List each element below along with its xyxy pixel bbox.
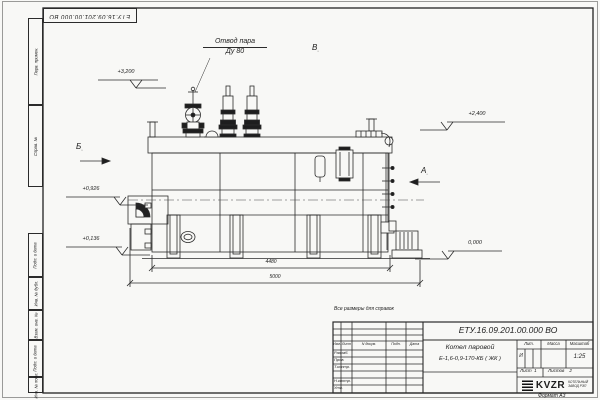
boiler-drawing: [0, 0, 600, 400]
kvzr-logo-icon: [522, 380, 533, 391]
title-doc-number: ЕТУ.16.09.201.00.000 ВО: [423, 326, 593, 335]
title-product-line1: Котел паровой: [423, 344, 517, 351]
top-stamp-box: ЕТУ.16.09.201.00.000 ВО: [43, 8, 137, 23]
elevation-0926: +0,926: [64, 186, 118, 192]
title-product-line2: Е-1,6-0,9-170-КБ ( ЖК ): [423, 356, 517, 362]
elevation-3200: +3,200: [98, 69, 154, 75]
rev-header-izm: Изм.: [333, 343, 341, 347]
margin-label: Инв. № подл.: [33, 372, 38, 398]
row-label-checked: Пров.: [334, 358, 345, 362]
elevation-0000: 0,000: [448, 240, 502, 246]
scale-header: Масштаб: [566, 342, 593, 347]
top-stamp-number: ЕТУ.16.09.201.00.000 ВО: [49, 13, 130, 19]
steam-outlet-callout: Отвод пара Ду 80: [203, 38, 267, 55]
reference-note: Все размеры для справок: [334, 307, 394, 313]
sheet-cell: Лист 1: [520, 369, 537, 374]
rev-header-date: Дата: [406, 343, 423, 347]
row-label-tcontrol: Т.контр.: [334, 365, 350, 369]
margin-cell-podp-data-1: Подп. и дата: [28, 233, 43, 277]
steam-outlet-line1: Отвод пара: [203, 38, 267, 48]
margin-label: Подп. и дата: [33, 345, 38, 371]
rev-header-list: Лист: [341, 343, 352, 347]
mass-header: Масса: [541, 342, 566, 347]
lit-value: И: [517, 354, 525, 360]
margin-label: Справ. №: [33, 136, 38, 155]
row-label-developed: Разраб.: [334, 351, 348, 355]
sheets-cell: Листов 2: [548, 369, 572, 374]
view-label-a: А◦: [421, 167, 428, 177]
margin-label: Взам. инв. №: [33, 312, 38, 338]
drawing-sheet: Перв. примен. Справ. № Подп. и дата Инв.…: [0, 0, 600, 400]
kvzr-logo-text: KVZR: [536, 380, 565, 391]
steam-outlet-line2: Ду 80: [203, 48, 267, 56]
row-label-ncontrol: Н.контр.: [334, 379, 351, 383]
lit-header: Лит.: [517, 342, 541, 347]
rev-header-doc: N докум.: [352, 343, 386, 347]
margin-label: Перв. примен.: [33, 48, 38, 76]
margin-cell-perv-primen: Перв. примен.: [28, 18, 43, 105]
format-note: Формат А3: [538, 394, 565, 400]
elevation-2400: +2,400: [449, 111, 505, 117]
dimension-5000: 5000: [255, 275, 295, 281]
margin-cell-podp-data-2: Подп. и дата: [28, 340, 43, 377]
margin-cell-vzam-inv: Взам. инв. №: [28, 310, 43, 340]
margin-label: Инв. № дубл.: [33, 281, 38, 307]
rev-header-sign: Подп.: [386, 343, 406, 347]
view-label-v: В◦: [312, 44, 319, 54]
kvzr-logo-subtext: КОТЕЛЬНЫЙ ЗАВОД РЭП: [568, 381, 588, 389]
margin-cell-inv-podl: Инв. № подл.: [28, 377, 43, 393]
elevation-0136: +0,136: [64, 236, 118, 242]
view-label-b: Б◦: [76, 143, 83, 153]
margin-cell-inv-dubl: Инв. № дубл.: [28, 277, 43, 310]
row-label-approved: Утв.: [334, 386, 343, 390]
margin-label: Подп. и дата: [33, 242, 38, 268]
dimension-4480: 4480: [251, 260, 291, 266]
kvzr-logo: KVZR КОТЕЛЬНЫЙ ЗАВОД РЭП: [518, 378, 592, 392]
margin-cell-sprav: Справ. №: [28, 105, 43, 187]
scale-value: 1:25: [566, 354, 593, 361]
